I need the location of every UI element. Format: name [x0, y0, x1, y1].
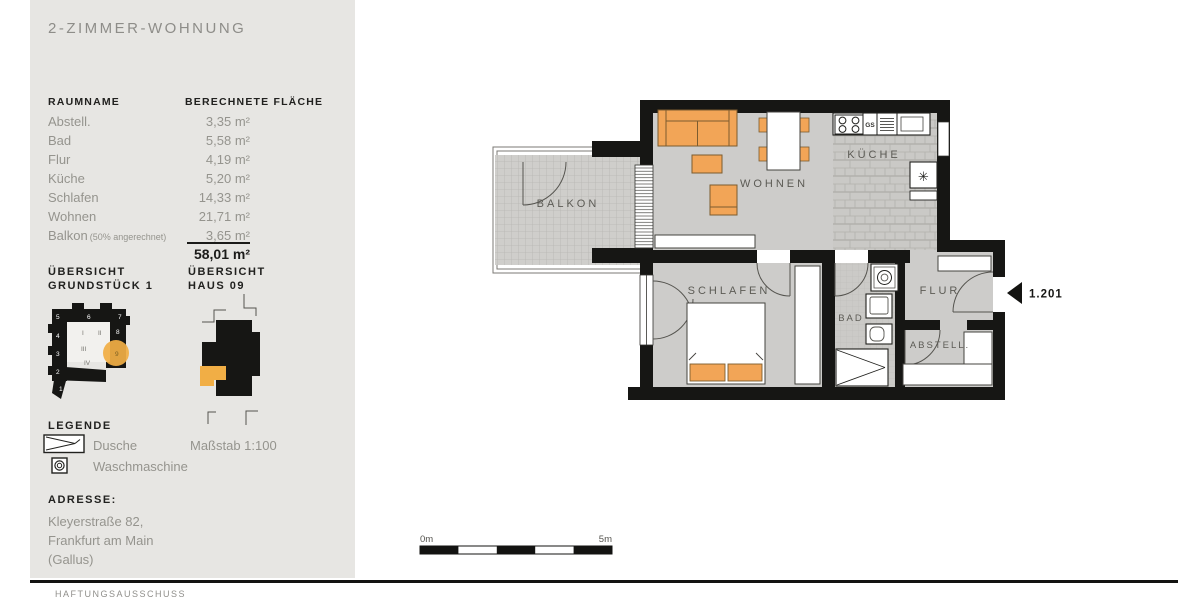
balcony: BALKON: [493, 141, 653, 273]
scale-bar: 0m 5m: [420, 534, 612, 554]
house-overview-heading: ÜBERSICHT HAUS 09: [188, 265, 266, 293]
svg-text:I: I: [82, 330, 84, 337]
room-area: 5,20 m²: [206, 169, 250, 188]
page: WOHNUNG 1.201 2-ZIMMER-WOHNUNG RAUMNAME …: [0, 0, 1200, 600]
room-area: 14,33 m²: [199, 188, 250, 207]
svg-text:1: 1: [59, 386, 63, 393]
bed: [687, 303, 765, 384]
dishwasher-label: GS: [865, 122, 875, 129]
svg-text:II: II: [98, 330, 102, 337]
room-note: (50% angerechnet): [90, 232, 167, 242]
svg-text:5: 5: [56, 314, 60, 321]
room-label-kueche: KÜCHE: [847, 149, 901, 161]
svg-text:III: III: [81, 346, 87, 353]
unit-title: WOHNUNG 1.201: [48, 0, 355, 7]
svg-text:✳: ✳: [918, 169, 929, 184]
entrance-arrow-icon: [1007, 282, 1022, 304]
svg-text:7: 7: [118, 314, 122, 321]
washer-label: Waschmaschine: [93, 459, 188, 474]
room-label-wohnen: WOHNEN: [740, 178, 808, 190]
room-name: Bad: [48, 133, 71, 148]
dining-chair: [800, 147, 809, 161]
sofa: [658, 110, 737, 146]
table-row: Flur4,19 m²: [48, 150, 250, 169]
room-name: Wohnen: [48, 209, 96, 224]
room-area: 3,35 m²: [206, 112, 250, 131]
room-label-bad: BAD: [838, 313, 864, 324]
footer-divider: [30, 580, 1178, 583]
scale-start-label: 0m: [420, 534, 433, 545]
scale-note: Maßstab 1:100: [190, 438, 277, 453]
address-line: Frankfurt am Main: [48, 531, 153, 550]
unit-number-label: 1.201: [1029, 289, 1063, 301]
room-rows: Abstell.3,35 m² Bad5,58 m² Flur4,19 m² K…: [48, 112, 250, 245]
sideboard: [655, 235, 755, 248]
table-row: Bad5,58 m²: [48, 131, 250, 150]
svg-text:IV: IV: [84, 360, 91, 367]
washbasin-icon: [866, 294, 892, 318]
svg-text:6: 6: [87, 314, 91, 321]
col-header-flaeche: BERECHNETE FLÄCHE: [185, 96, 323, 108]
col-header-raumname: RAUMNAME: [48, 96, 120, 108]
armchair: [710, 185, 737, 215]
address-heading: ADRESSE:: [48, 494, 117, 506]
total-divider-line: [187, 242, 250, 244]
room-area: 21,71 m²: [199, 207, 250, 226]
house-overview-map: [188, 292, 273, 427]
washing-machine-icon: [51, 457, 68, 474]
room-label-flur: FLUR: [920, 285, 961, 297]
toilet-icon: [866, 324, 892, 344]
room-area: 4,19 m²: [206, 150, 250, 169]
room-name: Abstell.: [48, 114, 91, 129]
kitchen-window: [938, 122, 949, 156]
kitchen-shelf: [910, 191, 937, 200]
total-area: 58,01 m²: [48, 246, 250, 262]
svg-text:3: 3: [56, 351, 60, 358]
table-row: Wohnen21,71 m²: [48, 207, 250, 226]
table-row: Abstell.3,35 m²: [48, 112, 250, 131]
scale-end-label: 5m: [599, 534, 612, 545]
room-name: Küche: [48, 171, 85, 186]
balcony-window-strip: [635, 165, 653, 248]
left-panel: WOHNUNG 1.201 2-ZIMMER-WOHNUNG RAUMNAME …: [30, 0, 355, 578]
shower-label: Dusche: [93, 438, 137, 453]
floorplan: BALKON: [410, 55, 1090, 580]
washing-machine-plan-icon: [871, 264, 898, 291]
legend-heading: LEGENDE: [48, 420, 112, 432]
svg-text:9: 9: [115, 351, 119, 358]
room-label-balkon: BALKON: [537, 198, 600, 210]
fridge-icon: ✳: [910, 162, 937, 188]
room-name: Schlafen: [48, 190, 99, 205]
kitchen-counter: GS: [833, 113, 930, 135]
room-name: Flur: [48, 152, 70, 167]
wardrobe: [795, 266, 820, 384]
hall-sideboard: [938, 256, 991, 271]
address-line: (Gallus): [48, 550, 153, 569]
address-line: Kleyerstraße 82,: [48, 512, 153, 531]
disclaimer-heading: HAFTUNGSAUSSCHUSS: [55, 589, 186, 599]
bedroom-window: [640, 275, 653, 345]
room-label-abstell: ABSTELL.: [910, 340, 970, 351]
shower-icon: [43, 434, 85, 454]
svg-text:4: 4: [56, 333, 60, 340]
svg-text:2: 2: [56, 369, 60, 376]
shower-plan-icon: [836, 349, 888, 386]
dining-chair: [800, 118, 809, 132]
table-row: Küche5,20 m²: [48, 169, 250, 188]
site-plan-map: 5 6 7 4 8 3 2 1 9 I II III IV: [48, 296, 133, 401]
address-block: Kleyerstraße 82, Frankfurt am Main (Gall…: [48, 512, 153, 569]
unit-subtitle: 2-ZIMMER-WOHNUNG: [48, 20, 246, 37]
room-label-schlafen: SCHLAFEN: [688, 285, 771, 297]
table-row: Schlafen14,33 m²: [48, 188, 250, 207]
coffee-table: [692, 155, 722, 173]
site-overview-heading: ÜBERSICHT GRUNDSTÜCK 1: [48, 265, 153, 293]
pillow: [690, 364, 725, 381]
room-name: Balkon: [48, 228, 88, 243]
pillow: [728, 364, 762, 381]
room-area: 5,58 m²: [206, 131, 250, 150]
svg-text:8: 8: [116, 329, 120, 336]
